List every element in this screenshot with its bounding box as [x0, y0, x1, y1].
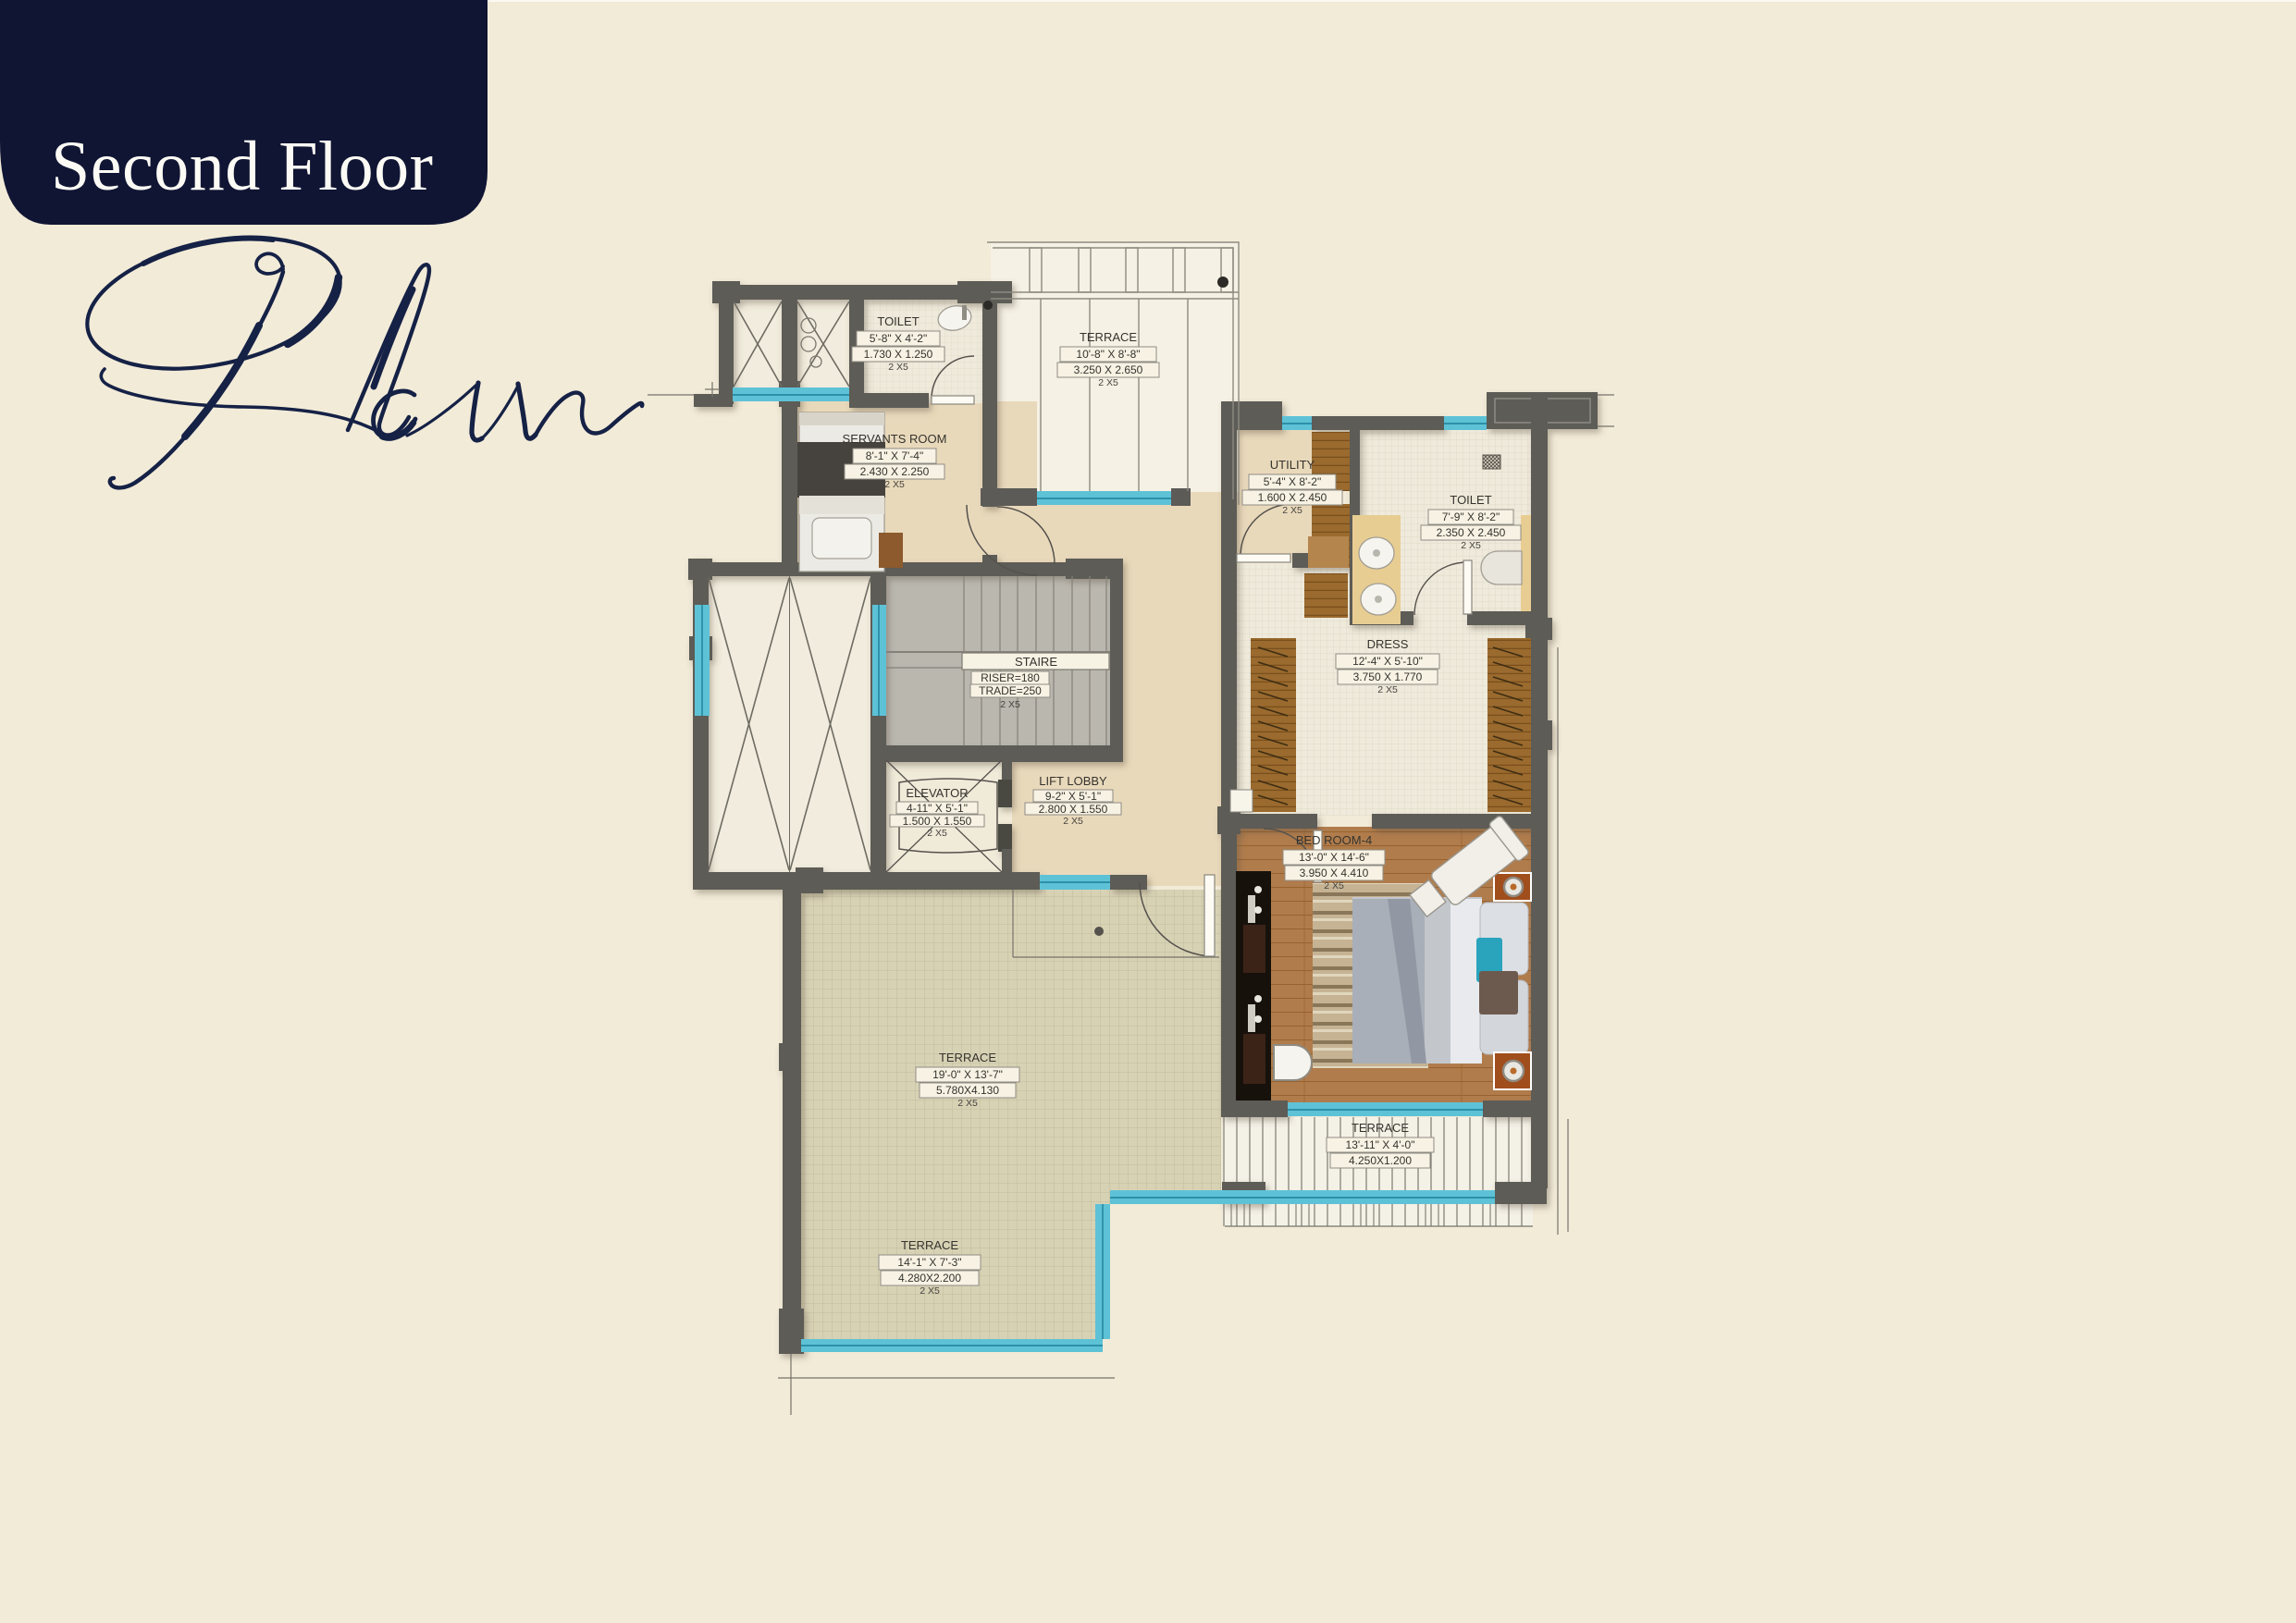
svg-text:3.250 X 2.650: 3.250 X 2.650 — [1074, 363, 1143, 376]
svg-text:2 X5: 2 X5 — [957, 1098, 978, 1109]
svg-text:2 X5: 2 X5 — [1098, 377, 1118, 388]
svg-text:DRESS: DRESS — [1367, 637, 1409, 651]
svg-text:5'-4" X 8'-2": 5'-4" X 8'-2" — [1264, 475, 1321, 488]
svg-text:2 X5: 2 X5 — [1000, 699, 1020, 710]
svg-text:2.430 X 2.250: 2.430 X 2.250 — [860, 465, 930, 478]
svg-text:4.250X1.200: 4.250X1.200 — [1349, 1154, 1412, 1167]
svg-text:2 X5: 2 X5 — [1461, 540, 1481, 551]
svg-text:13'-11" X 4'-0": 13'-11" X 4'-0" — [1346, 1138, 1415, 1151]
svg-text:3.750 X 1.770: 3.750 X 1.770 — [1353, 670, 1423, 683]
svg-text:10'-8" X 8'-8": 10'-8" X 8'-8" — [1076, 348, 1140, 361]
svg-text:TERRACE: TERRACE — [939, 1051, 996, 1064]
svg-text:TOILET: TOILET — [1450, 493, 1491, 507]
svg-text:TERRACE: TERRACE — [901, 1238, 958, 1252]
svg-text:1.500 X 1.550: 1.500 X 1.550 — [903, 815, 972, 828]
svg-text:2 X5: 2 X5 — [1063, 816, 1083, 827]
svg-text:SERVANTS ROOM: SERVANTS ROOM — [843, 432, 947, 446]
svg-text:TERRACE: TERRACE — [1080, 330, 1137, 344]
svg-text:RISER=180: RISER=180 — [981, 671, 1040, 684]
svg-text:5.780X4.130: 5.780X4.130 — [936, 1084, 999, 1097]
svg-text:2 X5: 2 X5 — [1324, 880, 1344, 891]
svg-text:4-11" X 5'-1": 4-11" X 5'-1" — [907, 802, 968, 815]
svg-text:9-2" X 5'-1": 9-2" X 5'-1" — [1045, 790, 1101, 803]
svg-text:TOILET: TOILET — [877, 314, 919, 328]
svg-text:2 X5: 2 X5 — [920, 1285, 940, 1297]
svg-text:2.800 X 1.550: 2.800 X 1.550 — [1039, 803, 1108, 816]
svg-text:2 X5: 2 X5 — [927, 828, 947, 839]
svg-text:2 X5: 2 X5 — [1282, 505, 1302, 516]
svg-text:2 X5: 2 X5 — [1377, 684, 1398, 695]
svg-text:3.950 X 4.410: 3.950 X 4.410 — [1300, 867, 1369, 879]
svg-text:TERRACE: TERRACE — [1352, 1121, 1409, 1135]
svg-text:UTILITY: UTILITY — [1270, 458, 1315, 472]
svg-text:4.280X2.200: 4.280X2.200 — [898, 1272, 961, 1285]
svg-text:2.350 X 2.450: 2.350 X 2.450 — [1437, 526, 1506, 539]
svg-text:13'-0" X 14'-6": 13'-0" X 14'-6" — [1299, 851, 1369, 864]
svg-text:19'-0" X 13'-7": 19'-0" X 13'-7" — [932, 1068, 1003, 1081]
svg-text:LIFT LOBBY: LIFT LOBBY — [1039, 774, 1107, 788]
svg-text:5'-8" X 4'-2": 5'-8" X 4'-2" — [870, 332, 927, 345]
svg-text:2 X5: 2 X5 — [888, 362, 908, 373]
svg-text:TRADE=250: TRADE=250 — [979, 684, 1042, 697]
svg-text:2 X5: 2 X5 — [884, 479, 905, 490]
svg-text:1.730 X 1.250: 1.730 X 1.250 — [864, 348, 933, 361]
svg-text:ELEVATOR: ELEVATOR — [906, 786, 968, 800]
svg-text:12'-4" X 5'-10": 12'-4" X 5'-10" — [1352, 655, 1423, 668]
svg-text:8'-1" X 7'-4": 8'-1" X 7'-4" — [866, 449, 923, 462]
svg-text:STAIRE: STAIRE — [1015, 655, 1057, 669]
svg-text:Second Floor: Second Floor — [51, 128, 433, 205]
svg-text:7'-9" X 8'-2": 7'-9" X 8'-2" — [1442, 510, 1500, 523]
svg-text:BED ROOM-4: BED ROOM-4 — [1296, 833, 1372, 847]
svg-text:14'-1" X 7'-3": 14'-1" X 7'-3" — [897, 1256, 961, 1269]
svg-text:1.600 X 2.450: 1.600 X 2.450 — [1258, 491, 1327, 504]
